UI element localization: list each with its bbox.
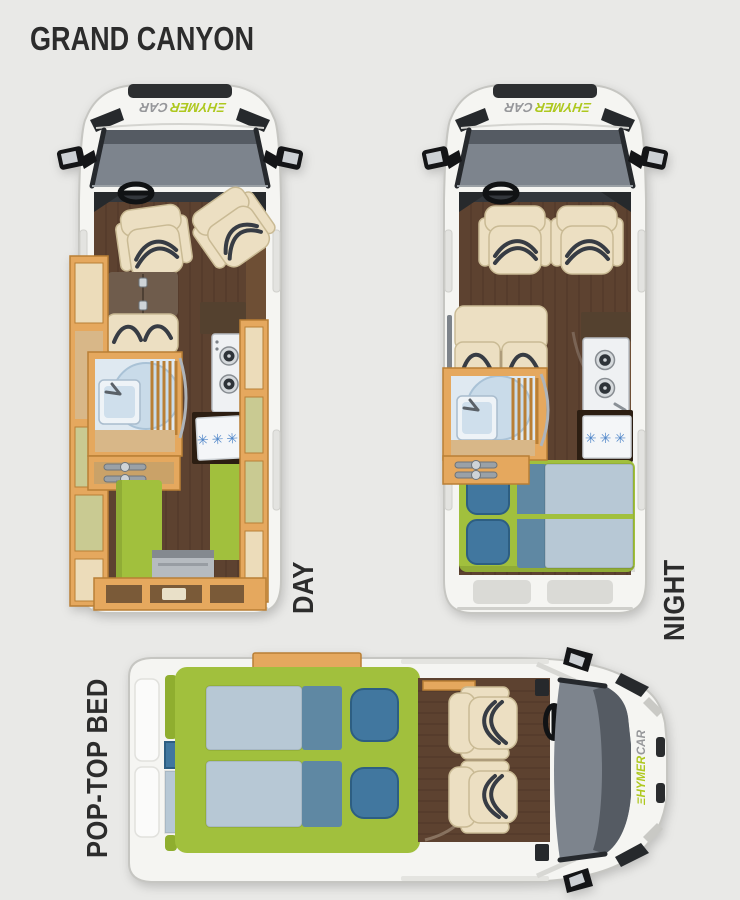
stove-burner-icon — [596, 379, 615, 398]
stowed-cushion — [75, 495, 103, 551]
label-day: DAY — [288, 561, 321, 614]
freezer-rating: ✳✳✳ — [197, 431, 242, 449]
brand-logo-green-text: ΞHYMER — [636, 755, 648, 806]
brand-logo: ΞHYMER CAR — [503, 100, 593, 115]
pillow — [351, 768, 398, 818]
van-day-top-view: ΞHYMER CAR — [50, 80, 310, 625]
grand-canyon-floorplan-page: GRAND CANYON ΞHYMER — [0, 0, 740, 900]
side-window — [445, 230, 452, 292]
grille-insert — [656, 783, 665, 803]
brand-logo-gray-text: CAR — [503, 100, 534, 115]
stove-burner-icon — [220, 347, 238, 365]
windshield — [92, 130, 268, 186]
stored-item — [162, 588, 186, 600]
freezer-rating: ✳✳✳ — [585, 431, 629, 447]
page-title: GRAND CANYON — [30, 20, 254, 58]
poptop-bed — [175, 667, 420, 853]
side-window — [273, 230, 280, 292]
brand-logo: ΞHYMER CAR — [636, 729, 648, 806]
stove — [583, 338, 629, 412]
rear-bench — [106, 272, 178, 354]
brand-logo-green-text: ΞHYMER — [534, 100, 593, 115]
stove-burner-icon — [220, 375, 238, 393]
side-window — [638, 430, 645, 510]
bathroom — [88, 352, 186, 456]
roof-bar — [401, 659, 549, 664]
kitchen-counter — [200, 302, 246, 334]
grille-insert — [656, 737, 665, 757]
floor-mat — [547, 580, 613, 604]
duvet-fold — [302, 686, 342, 750]
side-window — [273, 430, 280, 510]
stove-burner-icon — [596, 351, 615, 370]
kitchen-block: ✳✳✳ — [577, 312, 633, 462]
windshield — [554, 680, 631, 860]
windshield — [457, 130, 633, 186]
pillow — [351, 689, 398, 741]
rear-window — [135, 679, 159, 761]
brand-logo: ΞHYMER CAR — [138, 100, 228, 115]
van-poptop-top-view: ΞHYMER CAR — [105, 645, 685, 895]
side-window — [638, 230, 645, 292]
rear-storage-shelf — [94, 578, 266, 610]
cab-corner-trim — [535, 679, 549, 696]
label-night: NIGHT — [659, 559, 692, 641]
refrigerator: ✳✳✳ — [192, 412, 246, 464]
roof-bar — [401, 876, 549, 881]
rear-bumper — [457, 607, 633, 610]
green-bench-cushion — [210, 456, 244, 560]
rear-windows — [135, 679, 159, 837]
brand-logo-gray-text: CAR — [636, 729, 648, 755]
wardrobe-column-right — [240, 320, 268, 602]
van-night-top-view: ΞHYMER CAR — [415, 80, 675, 625]
brand-logo-green-text: ΞHYMER — [169, 100, 228, 115]
roof-vent — [128, 84, 232, 98]
duvet — [206, 761, 302, 827]
pillow — [467, 520, 509, 564]
duvet — [206, 686, 302, 750]
rear-window — [135, 767, 159, 837]
duvet-fold — [302, 761, 342, 827]
brand-logo-gray-text: CAR — [138, 100, 169, 115]
passenger-seat — [551, 206, 623, 274]
table-hardware-shelf — [443, 456, 529, 484]
driver-seat — [449, 687, 517, 759]
floor-mat — [473, 580, 531, 604]
bed-split — [517, 514, 633, 519]
roof-vent — [493, 84, 597, 98]
cab-corner-trim — [535, 844, 549, 861]
label-poptop: POP-TOP BED — [82, 678, 115, 858]
passenger-seat — [449, 761, 517, 833]
refrigerator: ✳✳✳ — [577, 410, 633, 462]
bathroom — [443, 368, 548, 460]
driver-seat — [479, 206, 551, 274]
